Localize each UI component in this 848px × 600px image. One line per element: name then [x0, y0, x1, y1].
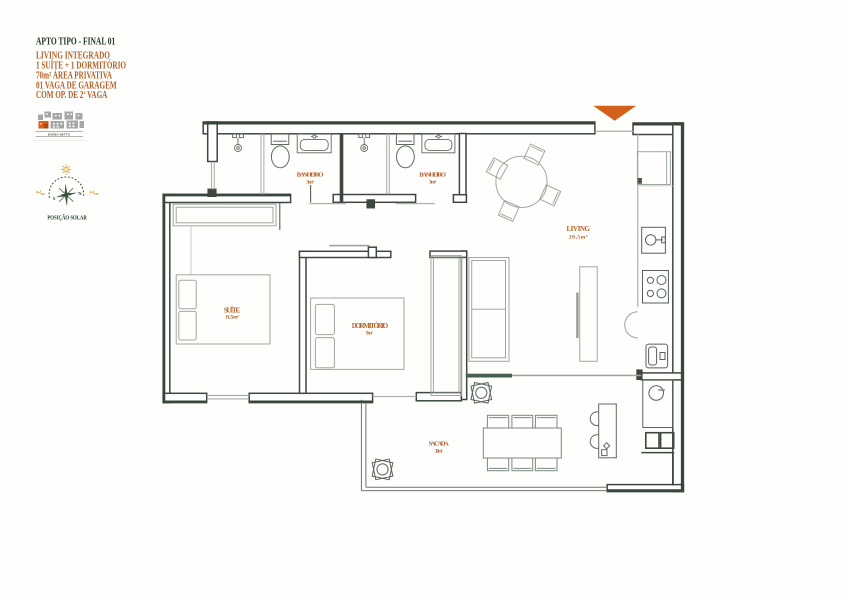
svg-text:3m²: 3m² — [429, 180, 437, 186]
svg-text:BUENO NETTO: BUENO NETTO — [48, 132, 70, 136]
svg-text:BANHEIRO: BANHEIRO — [419, 172, 446, 179]
svg-text:S: S — [53, 196, 56, 201]
svg-text:SUÍTE: SUÍTE — [224, 307, 241, 315]
svg-text:SACADA: SACADA — [429, 440, 449, 447]
svg-text:BANHEIRO: BANHEIRO — [297, 172, 324, 179]
svg-text:DORMITÓRIO: DORMITÓRIO — [352, 322, 389, 330]
svg-text:POSIÇÃO SOLAR: POSIÇÃO SOLAR — [47, 213, 87, 221]
svg-text:APTO TIPO - FINAL 01: APTO TIPO - FINAL 01 — [36, 36, 115, 47]
svg-text:9m²: 9m² — [366, 330, 373, 336]
svg-text:11,5m²: 11,5m² — [225, 315, 239, 321]
svg-text:LIVING: LIVING — [566, 225, 590, 233]
svg-text:20,5m²: 20,5m² — [569, 234, 588, 240]
svg-text:COM OP. DE 2ª VAGA: COM OP. DE 2ª VAGA — [36, 90, 108, 101]
svg-text:12m²: 12m² — [435, 448, 443, 454]
svg-text:3m²: 3m² — [306, 180, 314, 186]
